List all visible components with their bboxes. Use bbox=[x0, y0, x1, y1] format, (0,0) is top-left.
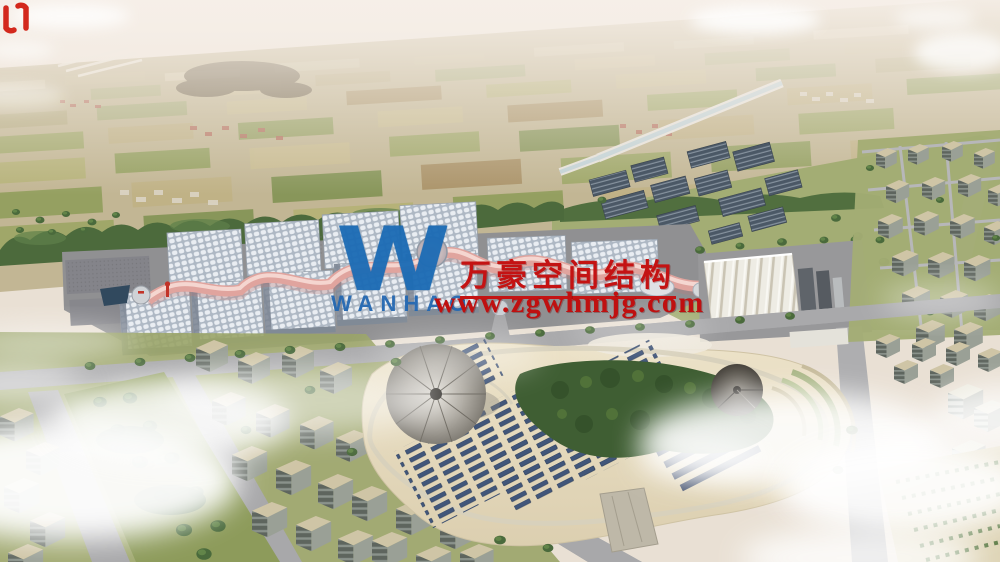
watermark-website: www.zgwhmjg.com bbox=[434, 286, 705, 320]
rendering-canvas: W WANHAO 万豪空间结构 www.zgwhmjg.com bbox=[0, 0, 1000, 562]
watermark-logo-red-motif bbox=[0, 0, 32, 36]
